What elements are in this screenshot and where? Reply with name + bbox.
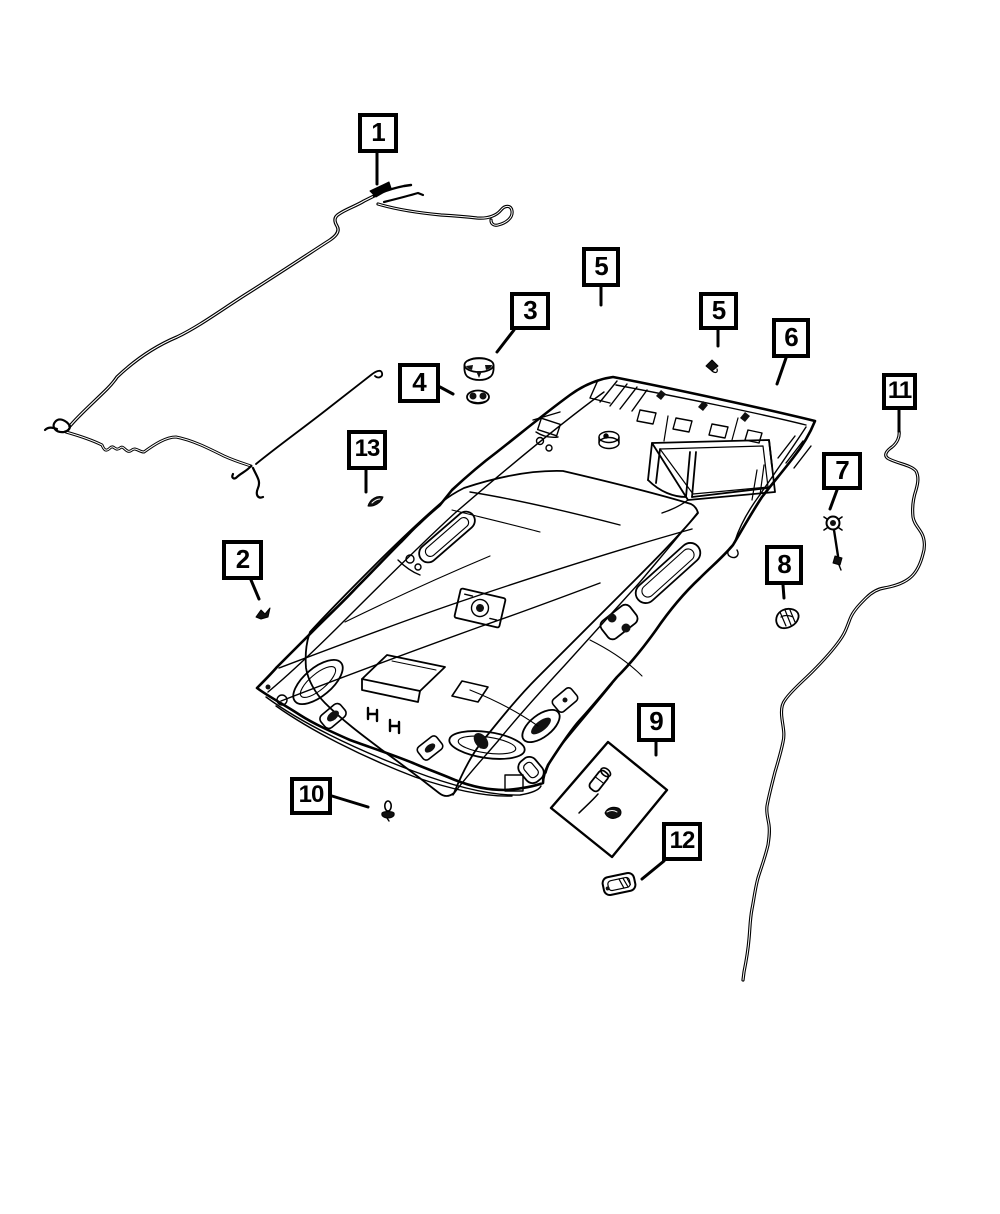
center-plate (454, 588, 506, 628)
center-panel (306, 471, 698, 796)
callout-box-10[interactable]: 10 (290, 777, 332, 815)
leader-line-12 (642, 861, 664, 879)
callout-box-8[interactable]: 8 (765, 545, 803, 585)
wire-harness-drawing (45, 182, 512, 498)
callout-box-13[interactable]: 13 (347, 430, 387, 470)
callout-label: 5 (594, 251, 607, 282)
callout-label: 11 (888, 377, 911, 405)
leader-line-6 (777, 358, 786, 384)
antenna-wire-drawing (743, 431, 924, 980)
harness-tip-2 (384, 193, 423, 202)
callout-box-12[interactable]: 12 (662, 822, 702, 861)
callout-box-5a[interactable]: 5 (582, 247, 620, 287)
lens-part-12 (601, 872, 636, 896)
clip-part-5 (706, 360, 718, 372)
grommet-part-4 (467, 391, 489, 404)
leader-line-7 (830, 490, 837, 509)
lamp-kit-drawing (551, 742, 667, 857)
parts-diagram-svg (0, 0, 1000, 1214)
headliner-panel-drawing (257, 377, 815, 796)
screw-part-10 (382, 801, 394, 821)
front-console-block (362, 655, 445, 702)
leader-line-2 (251, 580, 259, 599)
callout-label: 10 (299, 781, 324, 809)
callout-label: 9 (649, 706, 662, 737)
clip-part-2 (256, 608, 270, 619)
kit-box-outline (551, 742, 667, 857)
leader-line-10 (332, 796, 368, 807)
mid-band (470, 492, 688, 525)
h-clip-1 (368, 708, 377, 721)
callout-box-6[interactable]: 6 (772, 318, 810, 358)
rear-cup-fitting (599, 432, 619, 449)
harness-fork-b (253, 468, 263, 498)
wedge-part-13 (368, 496, 383, 506)
callout-label: 3 (523, 295, 536, 326)
callout-box-2[interactable]: 2 (222, 540, 263, 580)
harness-left-curl (45, 419, 70, 432)
left-corner-hatch (600, 381, 647, 411)
sunroof-tray (648, 416, 775, 500)
harness-fork-a (232, 466, 251, 478)
callout-label: 2 (236, 544, 249, 575)
front-small-block (452, 681, 488, 702)
rear-edge-inner (616, 385, 806, 425)
callout-label: 13 (355, 435, 380, 463)
diagram-stage: 123455678910111213 (0, 0, 1000, 1214)
rear-left-bracket (533, 412, 560, 451)
callout-box-7[interactable]: 7 (822, 452, 862, 490)
leader-line-8 (783, 585, 784, 598)
loose-parts (256, 358, 842, 896)
kit-clip (605, 807, 621, 818)
leader-lines-layer (251, 153, 899, 879)
harness-connector-arrow (370, 182, 391, 197)
callout-box-3[interactable]: 3 (510, 292, 550, 330)
callout-label: 7 (835, 455, 848, 486)
leader-line-3 (497, 330, 514, 352)
pin-part-7 (824, 517, 842, 571)
callout-box-11[interactable]: 11 (882, 373, 917, 410)
clip-part-8 (776, 609, 798, 628)
leader-line-4 (440, 387, 453, 394)
callout-box-5b[interactable]: 5 (699, 292, 738, 330)
callout-label: 6 (784, 322, 797, 353)
callout-label: 4 (412, 367, 425, 398)
callout-label: 12 (670, 827, 695, 855)
callout-label: 1 (371, 117, 384, 148)
callout-box-1[interactable]: 1 (358, 113, 398, 153)
callout-label: 5 (712, 295, 725, 326)
callout-box-9[interactable]: 9 (637, 703, 675, 742)
h-clip-2 (390, 720, 399, 733)
cap-part-3 (464, 358, 493, 380)
kit-bulb (579, 766, 612, 813)
callout-box-4[interactable]: 4 (398, 363, 440, 403)
callout-label: 8 (777, 549, 790, 580)
